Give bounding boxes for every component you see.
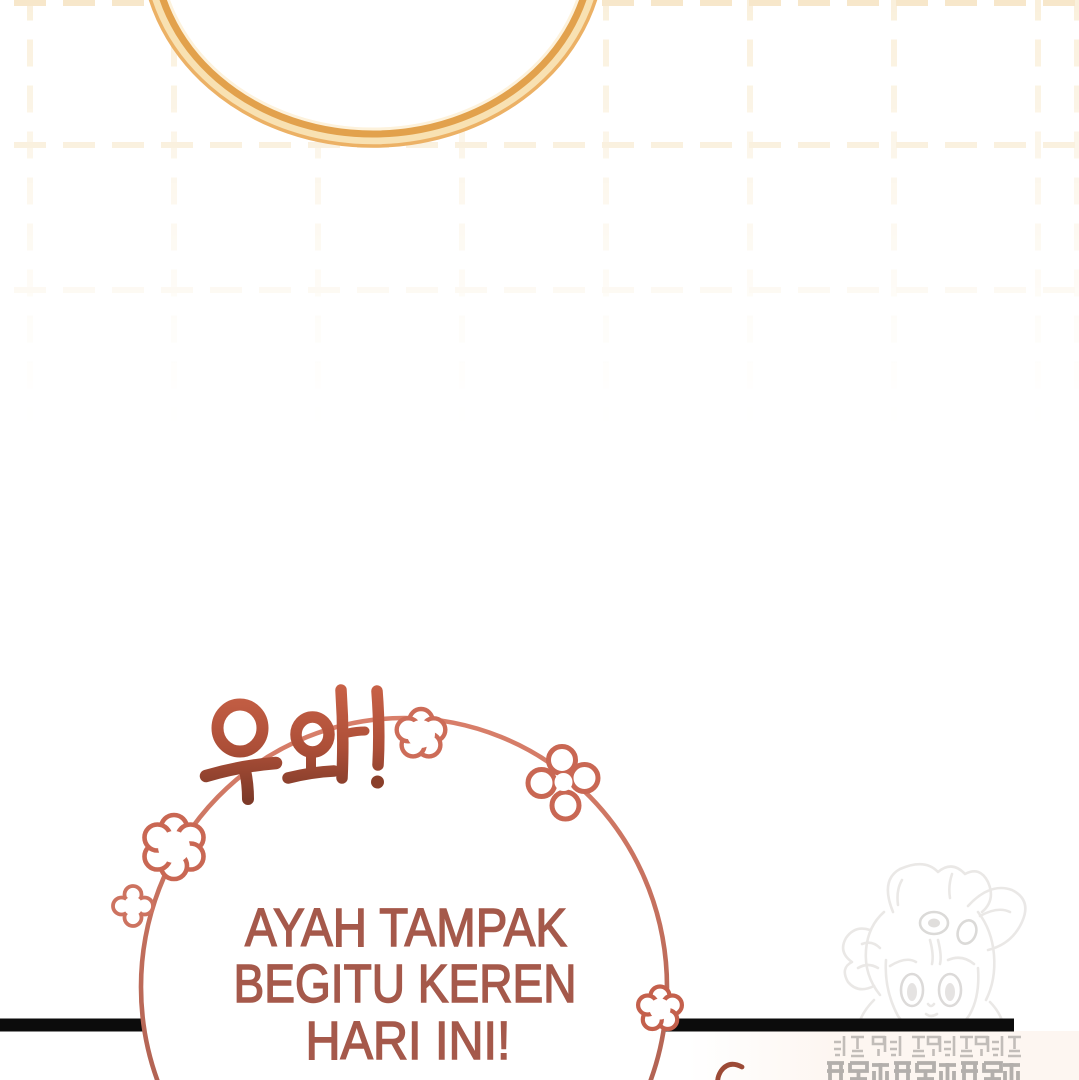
svg-text:BEGITU KEREN: BEGITU KEREN: [234, 954, 577, 1014]
svg-text:HARI INI!: HARI INI!: [306, 1011, 511, 1071]
svg-text:AYAH TAMPAK: AYAH TAMPAK: [245, 898, 567, 958]
